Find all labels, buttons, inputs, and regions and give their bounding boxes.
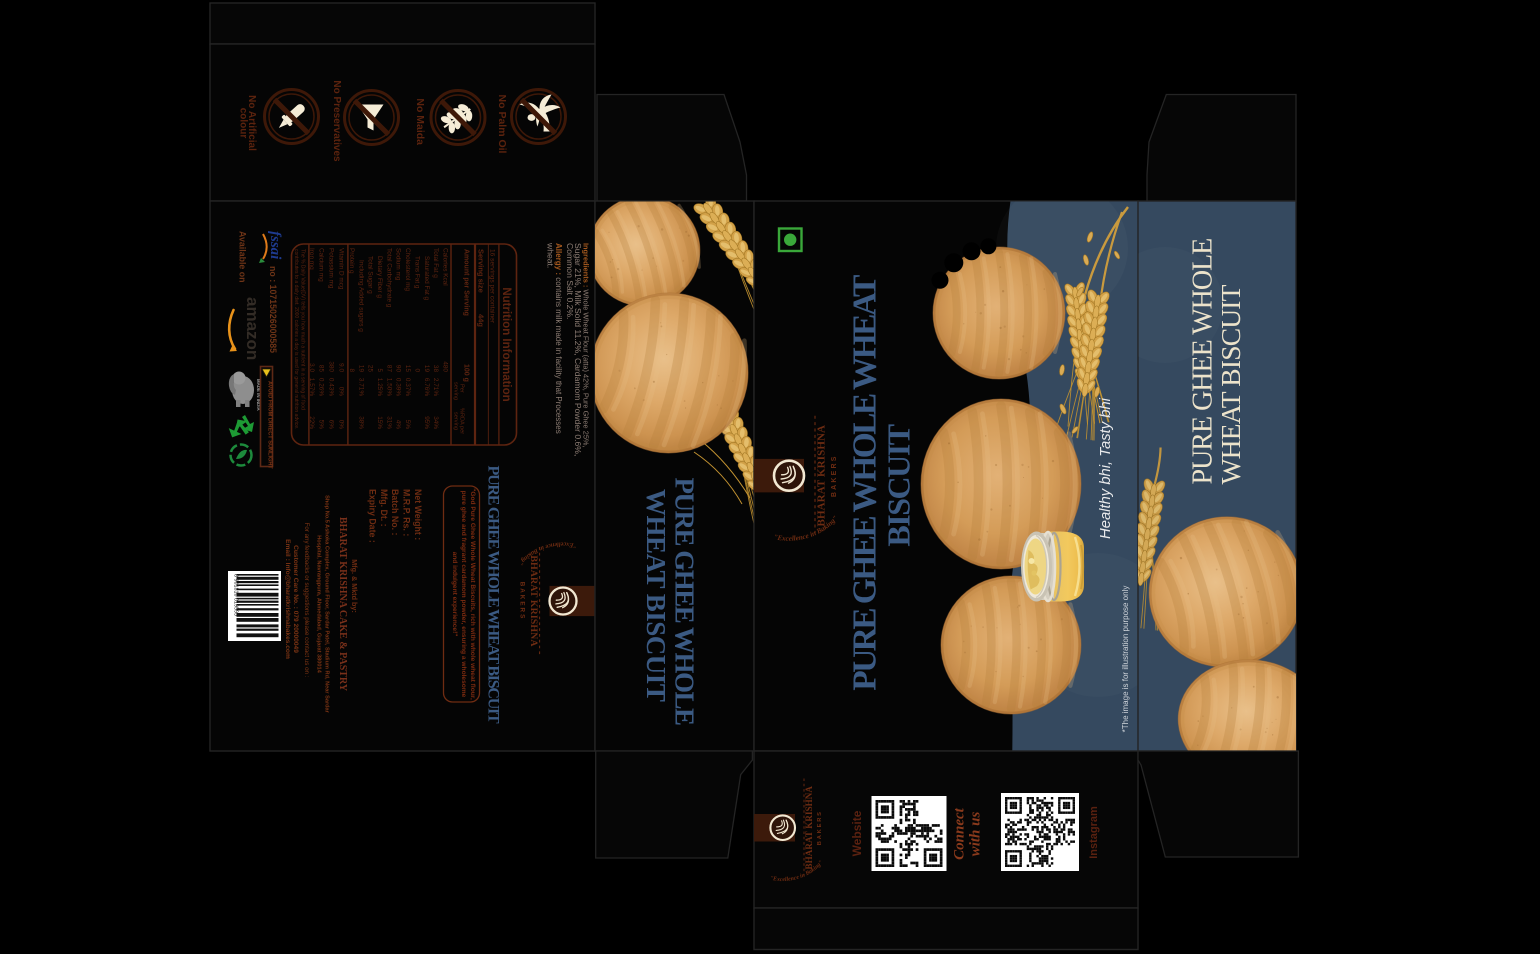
svg-text:no : 10715026000585: no : 10715026000585 bbox=[268, 266, 278, 353]
svg-text:8 901810 019595: 8 901810 019595 bbox=[233, 574, 239, 616]
svg-text:Common Salt 0.2%.: Common Salt 0.2%. bbox=[565, 243, 575, 319]
svg-text:34%: 34% bbox=[432, 416, 439, 429]
svg-text:4%: 4% bbox=[395, 420, 402, 430]
svg-text:8: 8 bbox=[348, 368, 355, 372]
svg-text:87: 87 bbox=[385, 365, 392, 373]
svg-text:Dietary Fiber g: Dietary Fiber g bbox=[376, 256, 383, 298]
svg-text:0%: 0% bbox=[338, 420, 345, 430]
svg-text:Hospital, Navrangpura, Ahmedab: Hospital, Navrangpura, Ahmedabad, Gujara… bbox=[316, 535, 322, 673]
svg-text:contributes to a daily diet. 2: contributes to a daily diet. 2000 calori… bbox=[293, 249, 299, 429]
svg-text:0: 0 bbox=[413, 368, 420, 372]
svg-text:6.76%: 6.76% bbox=[423, 378, 430, 396]
svg-text:Mfg. Dt. :: Mfg. Dt. : bbox=[379, 489, 389, 527]
svg-text:0.39%: 0.39% bbox=[395, 378, 402, 396]
svg-text:amazon: amazon bbox=[243, 297, 262, 360]
svg-text:Expiry Date :: Expiry Date : bbox=[367, 489, 377, 543]
svg-text:WHEAT BISCUIT: WHEAT BISCUIT bbox=[641, 489, 671, 702]
svg-text:Connect: Connect bbox=[952, 807, 968, 860]
svg-text:BHARAT KRISHNA CAKE & PASTRY: BHARAT KRISHNA CAKE & PASTRY bbox=[337, 517, 348, 692]
svg-text:0.37%: 0.37% bbox=[404, 378, 411, 396]
svg-text:Cholesterol mg: Cholesterol mg bbox=[404, 248, 411, 291]
svg-text:PURE GHEE WHOLE WHEAT BISCUIT: PURE GHEE WHOLE WHEAT BISCUIT bbox=[485, 466, 502, 724]
svg-text:85: 85 bbox=[318, 365, 325, 373]
svg-text:BISCUIT: BISCUIT bbox=[881, 424, 917, 546]
svg-text:Protein g: Protein g bbox=[348, 248, 355, 274]
svg-text:PURE GHEE WHOLE: PURE GHEE WHOLE bbox=[670, 478, 700, 726]
svg-text:Sodium mg: Sodium mg bbox=[395, 248, 402, 281]
svg-text:Mfg. & Mktd by:: Mfg. & Mktd by: bbox=[350, 559, 359, 613]
svg-text:Including Added sugars g: Including Added sugars g bbox=[357, 260, 364, 332]
svg-text:19: 19 bbox=[357, 365, 364, 373]
svg-text:Customer Care No. : 079 200000: Customer Care No. : 079 20000049 bbox=[292, 545, 299, 653]
svg-text:1.50%: 1.50% bbox=[385, 378, 392, 396]
svg-text:No Preservatives: No Preservatives bbox=[331, 80, 342, 162]
svg-text:"God Pure Ghee Whole Wheat Bis: "God Pure Ghee Whole Wheat Biscuits, ric… bbox=[469, 488, 476, 700]
svg-text:Total Fat g: Total Fat g bbox=[432, 248, 439, 278]
svg-text:380: 380 bbox=[328, 361, 335, 372]
svg-text:0%: 0% bbox=[338, 387, 345, 397]
svg-text:Net Weight :: Net Weight : bbox=[413, 489, 423, 540]
svg-text:For any feedbacks or suggestio: For any feedbacks or suggestions please … bbox=[303, 523, 310, 678]
svg-text:colour: colour bbox=[238, 108, 249, 139]
svg-text:fssai: fssai bbox=[267, 231, 283, 260]
svg-text:BHARAT KRISHNA: BHARAT KRISHNA bbox=[804, 786, 814, 870]
svg-text:Calories Kcal: Calories Kcal bbox=[442, 248, 449, 286]
svg-text:5: 5 bbox=[376, 368, 383, 372]
svg-text:3.71%: 3.71% bbox=[357, 378, 364, 396]
svg-text:M.R.P. Rs. :: M.R.P. Rs. : bbox=[402, 489, 412, 536]
svg-text:Available on: Available on bbox=[238, 231, 248, 283]
svg-text:wheat.: wheat. bbox=[546, 242, 556, 268]
svg-text:BAKERS: BAKERS bbox=[817, 810, 823, 845]
svg-text:Website: Website bbox=[850, 810, 864, 856]
svg-text:25: 25 bbox=[367, 365, 374, 373]
svg-text:100 g: 100 g bbox=[463, 364, 470, 382]
svg-text:Batch No. :: Batch No. : bbox=[390, 489, 400, 535]
svg-text:serving: serving bbox=[453, 382, 459, 400]
svg-text:15%: 15% bbox=[376, 416, 383, 429]
svg-text:44g: 44g bbox=[477, 314, 486, 327]
svg-text:Potassium mg: Potassium mg bbox=[328, 248, 335, 289]
svg-text:90: 90 bbox=[395, 365, 402, 373]
svg-text:Shop No.5 Ashoka Complex, Grou: Shop No.5 Ashoka Complex, Ground Floor, … bbox=[324, 495, 330, 714]
svg-text:Saturated Fat g: Saturated Fat g bbox=[423, 256, 430, 300]
svg-text:9.0: 9.0 bbox=[338, 363, 345, 372]
svg-text:WHEAT BISCUIT: WHEAT BISCUIT bbox=[1215, 284, 1246, 484]
svg-text:Calcium mg: Calcium mg bbox=[318, 248, 325, 282]
svg-text:31%: 31% bbox=[385, 416, 392, 429]
svg-text:0.43%: 0.43% bbox=[328, 378, 335, 396]
svg-text:No Palm Oil: No Palm Oil bbox=[496, 95, 508, 154]
svg-text:PURE GHEE WHOLE: PURE GHEE WHOLE bbox=[1188, 239, 1219, 485]
svg-text:1.25%: 1.25% bbox=[376, 378, 383, 396]
svg-text:with us: with us bbox=[968, 812, 984, 857]
svg-text:38: 38 bbox=[432, 365, 439, 373]
svg-text:*The image is for illustration: *The image is for illustration purpose o… bbox=[1121, 586, 1130, 733]
svg-text:and indulgent experience!": and indulgent experience!" bbox=[451, 552, 458, 637]
svg-text:Healthy bhi, Tasty bhi: Healthy bhi, Tasty bhi bbox=[1098, 397, 1114, 539]
svg-text:pure ghee and fragrant cardamo: pure ghee and fragrant cardamom powder, … bbox=[460, 491, 467, 698]
svg-text:Total Sugar g: Total Sugar g bbox=[367, 256, 374, 294]
svg-text:5%: 5% bbox=[318, 420, 325, 430]
svg-text:Amount per Serving: Amount per Serving bbox=[463, 249, 470, 316]
svg-text:BHARAT KRISHNA: BHARAT KRISHNA bbox=[528, 555, 539, 647]
svg-text:480: 480 bbox=[442, 361, 449, 372]
svg-text:Instagram: Instagram bbox=[1088, 806, 1100, 859]
svg-text:BAKERS: BAKERS bbox=[519, 582, 526, 621]
svg-text:2.71%: 2.71% bbox=[432, 378, 439, 396]
svg-text:The % Daily Value(DV) tells yo: The % Daily Value(DV) tells you how much… bbox=[300, 249, 306, 410]
svg-text:38%: 38% bbox=[357, 416, 364, 429]
svg-text:BAKERS: BAKERS bbox=[831, 454, 838, 497]
svg-text:16 servings per container: 16 servings per container bbox=[489, 249, 496, 324]
svg-text:Vitamin D mcg: Vitamin D mcg bbox=[338, 248, 345, 290]
svg-text:Trans Fat g: Trans Fat g bbox=[413, 256, 420, 289]
svg-text:15: 15 bbox=[404, 365, 411, 373]
svg-text:serving: serving bbox=[453, 412, 459, 430]
svg-text:95%: 95% bbox=[423, 416, 430, 429]
svg-text:6%: 6% bbox=[328, 420, 335, 430]
svg-text:No Maida: No Maida bbox=[414, 98, 426, 145]
svg-text:AVOID FROM DIRECT SUNLIGHT: AVOID FROM DIRECT SUNLIGHT bbox=[267, 381, 273, 469]
svg-text:PURE GHEE WHOLE WHEAT: PURE GHEE WHOLE WHEAT bbox=[847, 275, 884, 691]
svg-text:5%: 5% bbox=[404, 420, 411, 430]
svg-text:Allergy : contains milk made i: Allergy : contains milk made in facility… bbox=[554, 243, 563, 434]
svg-text:Serving size: Serving size bbox=[477, 249, 486, 293]
svg-text:Total Carbohydrate g: Total Carbohydrate g bbox=[385, 248, 392, 308]
svg-text:BHARAT KRISHNA: BHARAT KRISHNA bbox=[816, 425, 828, 527]
svg-text:19: 19 bbox=[423, 365, 430, 373]
svg-text:Nutrition Information: Nutrition Information bbox=[500, 287, 512, 401]
svg-text:0.26%: 0.26% bbox=[318, 378, 325, 396]
svg-text:Email : Info@bharatkrishnabake: Email : Info@bharatkrishnabakes.com bbox=[284, 539, 291, 659]
